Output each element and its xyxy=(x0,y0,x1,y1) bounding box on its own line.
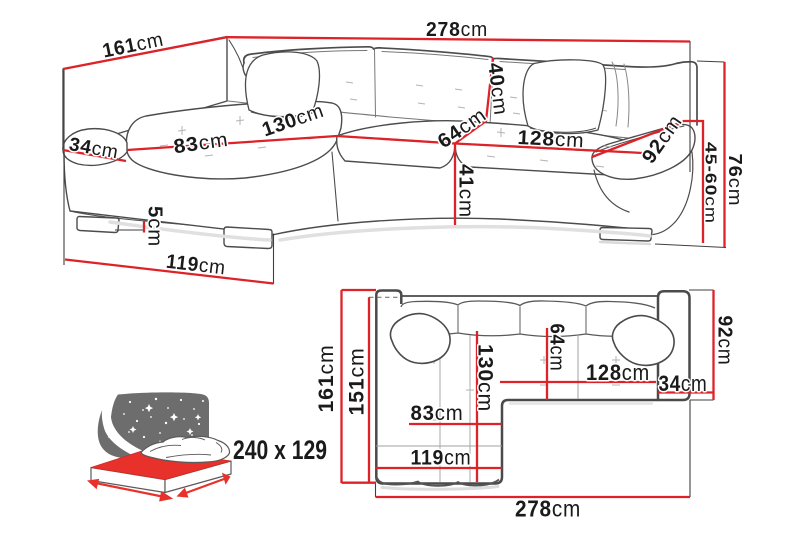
svg-text:278cm: 278cm xyxy=(515,496,581,522)
svg-text:41cm: 41cm xyxy=(454,164,476,218)
svg-text:119cm: 119cm xyxy=(411,446,472,469)
svg-text:130cm: 130cm xyxy=(474,344,497,412)
svg-text:128cm: 128cm xyxy=(517,127,585,152)
svg-text:83cm: 83cm xyxy=(411,402,464,425)
svg-text:64cm: 64cm xyxy=(545,324,567,372)
svg-text:34cm: 34cm xyxy=(659,371,708,396)
svg-text:128cm: 128cm xyxy=(586,360,650,385)
svg-text:45-60cm: 45-60cm xyxy=(702,142,719,224)
svg-text:5cm: 5cm xyxy=(143,206,165,247)
svg-text:76cm: 76cm xyxy=(725,154,745,207)
svg-text:240 x 129: 240 x 129 xyxy=(233,435,327,465)
svg-text:278cm: 278cm xyxy=(426,19,488,41)
svg-text:161cm: 161cm xyxy=(315,345,338,413)
svg-text:92cm: 92cm xyxy=(713,316,735,366)
svg-text:151cm: 151cm xyxy=(345,348,368,416)
